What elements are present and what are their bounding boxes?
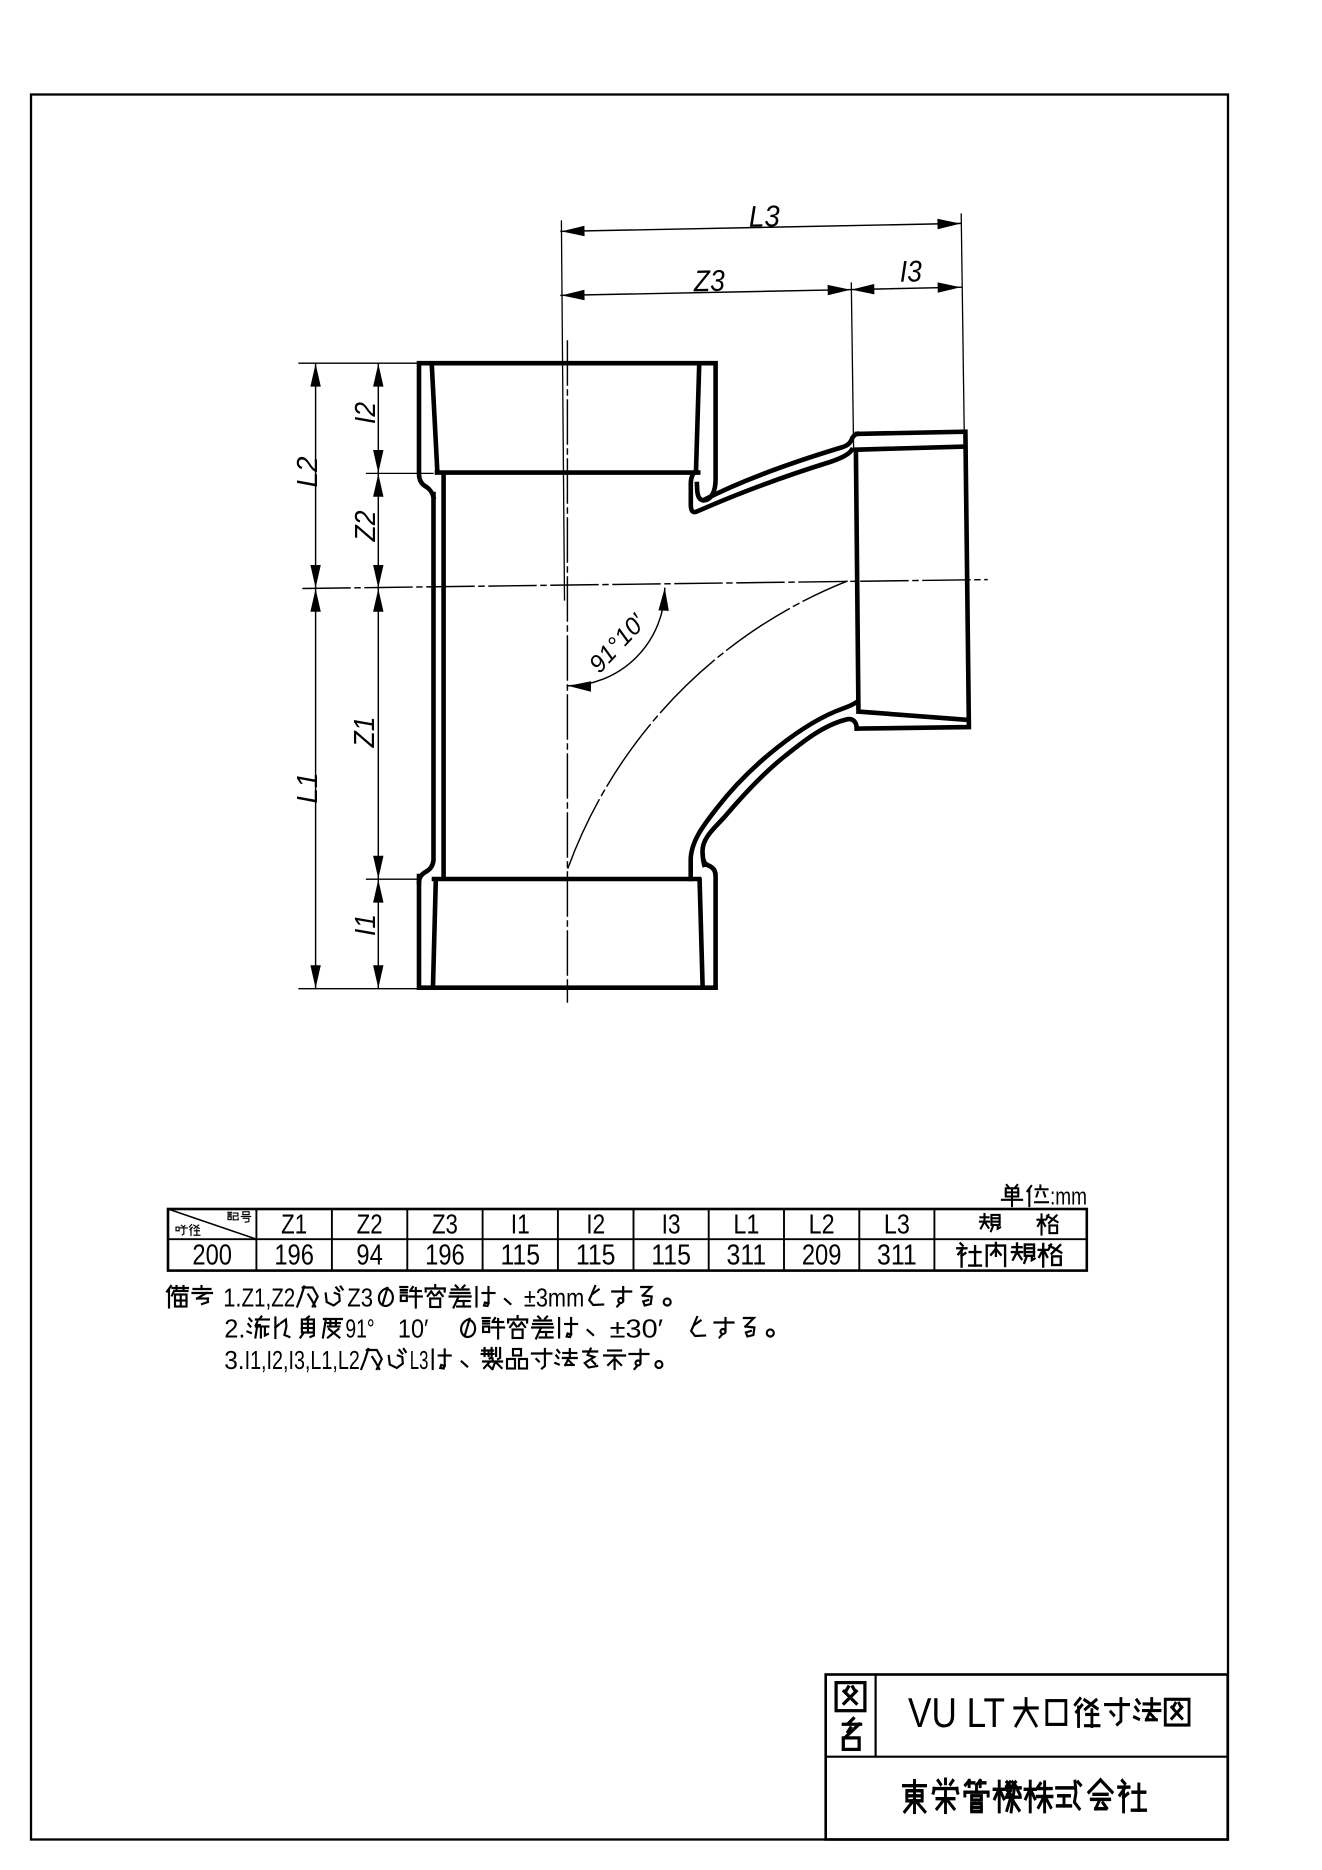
svg-text:196: 196 (274, 1240, 314, 1272)
svg-text:Z2: Z2 (357, 1209, 383, 1240)
svg-text:Z1: Z1 (349, 717, 381, 749)
svg-text:200: 200 (192, 1240, 232, 1272)
svg-text:L3: L3 (884, 1209, 910, 1240)
svg-text:Z1,Z2: Z1,Z2 (242, 1282, 296, 1312)
svg-text:L2: L2 (292, 457, 324, 488)
svg-text:3.: 3. (224, 1345, 244, 1375)
svg-text:10′: 10′ (398, 1313, 429, 1343)
svg-text:I1: I1 (350, 914, 382, 936)
svg-text:115: 115 (500, 1240, 540, 1272)
svg-text:L3: L3 (748, 200, 780, 234)
svg-text:Z3: Z3 (432, 1209, 458, 1240)
svg-text:Z3: Z3 (693, 265, 726, 299)
svg-text:I3: I3 (899, 255, 922, 288)
svg-text:Z1: Z1 (281, 1209, 307, 1240)
svg-text:115: 115 (576, 1240, 616, 1272)
svg-text:91°: 91° (345, 1313, 374, 1343)
svg-text::mm: :mm (1050, 1184, 1087, 1211)
svg-text:1.: 1. (223, 1282, 241, 1312)
svg-text:196: 196 (425, 1240, 465, 1272)
svg-text:±30′: ±30′ (610, 1313, 664, 1343)
svg-text:I2: I2 (586, 1209, 605, 1240)
svg-text:L1: L1 (292, 773, 324, 804)
svg-text:311: 311 (877, 1240, 917, 1272)
svg-text:311: 311 (727, 1240, 767, 1272)
svg-text:Z3: Z3 (347, 1282, 373, 1312)
svg-text:209: 209 (802, 1240, 842, 1272)
svg-text:115: 115 (651, 1240, 691, 1272)
svg-text:L1: L1 (733, 1209, 759, 1240)
svg-text:Z2: Z2 (350, 511, 382, 543)
svg-text:I1,I2,I3,L1,L2: I1,I2,I3,L1,L2 (245, 1345, 360, 1375)
svg-text:VU LT: VU LT (908, 1689, 1005, 1736)
svg-text:I2: I2 (350, 402, 382, 424)
svg-text:L2: L2 (809, 1209, 835, 1240)
svg-text:±3mm: ±3mm (524, 1282, 584, 1312)
svg-text:L3: L3 (410, 1345, 429, 1375)
svg-text:2.: 2. (224, 1313, 245, 1343)
svg-text:94: 94 (356, 1240, 382, 1272)
svg-text:I3: I3 (662, 1209, 681, 1240)
svg-text:I1: I1 (511, 1209, 530, 1240)
